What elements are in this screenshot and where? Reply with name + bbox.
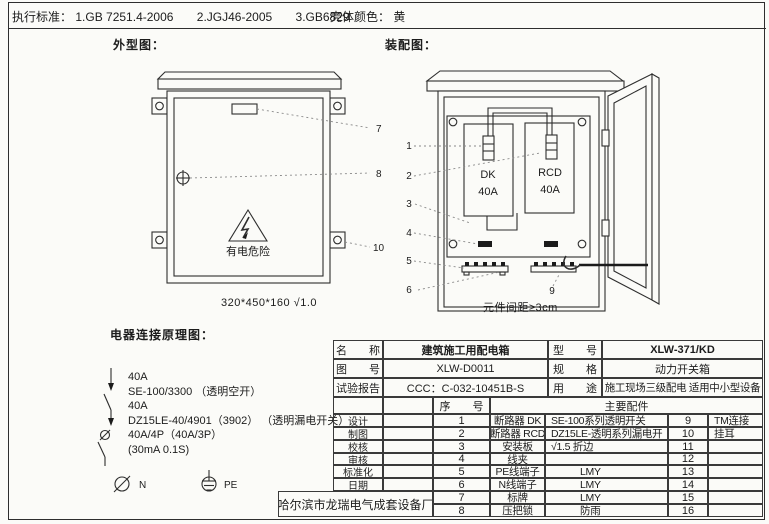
schematic-section-title: 电器连接原理图：: [110, 326, 214, 343]
sign-label: 标准化: [333, 465, 383, 478]
callout-10: 10: [373, 243, 385, 254]
sign-blank: [383, 427, 433, 440]
blank-cell: [383, 397, 433, 414]
schematic-line: 40A/4P（40A/3P）: [128, 428, 349, 443]
part-spec: DZ15LE-透明系列漏电开: [545, 427, 668, 440]
hinge: [602, 130, 609, 146]
shell-color: 壳体颜色： 黄: [330, 8, 405, 25]
schematic-spec-lines: 40A SE-100/3300 （透明空开） 40A DZ15LE-40/490…: [128, 370, 349, 458]
cabinet-roof: [158, 79, 341, 89]
callout-9: 9: [549, 286, 555, 297]
part-no2: 14: [668, 478, 708, 491]
factory-name: 哈尔滨市龙瑞电气成套设备厂: [278, 491, 433, 517]
part-spec2: [708, 478, 763, 491]
schematic-line: 40A: [128, 370, 349, 385]
part-no: 7: [433, 491, 490, 504]
header-divider: [8, 28, 766, 29]
neutral-earth-symbols: N PE: [108, 468, 248, 502]
part-spec: [545, 453, 668, 465]
schematic-line: DZ15LE-40/4901（3902） （透明漏电开关）: [128, 414, 349, 429]
callout-1: 1: [406, 141, 412, 152]
part-name: 断路器 RCD: [490, 427, 545, 440]
part-no: 4: [433, 453, 490, 465]
outline-size-caption: 320*450*160 √1.0: [221, 297, 317, 309]
part-no2: 10: [668, 427, 708, 440]
part-spec: LMY: [545, 491, 668, 504]
callout-4: 4: [406, 228, 412, 239]
shell-color-value: 黄: [393, 10, 405, 24]
sign-blank: [383, 453, 433, 465]
part-no: 2: [433, 427, 490, 440]
part-spec: SE-100系列透明开关: [545, 414, 668, 427]
sign-blank: [383, 478, 433, 491]
info-label: 型 号: [548, 340, 602, 359]
sign-label: 审核: [333, 453, 383, 465]
cable-clamp: [478, 241, 492, 247]
part-spec: LMY: [545, 465, 668, 478]
drawing-number: XLW-D0011: [383, 359, 548, 378]
part-name: 安装板: [490, 440, 545, 453]
breaker-rcd-rating: 40A: [540, 184, 560, 196]
part-spec2: [708, 491, 763, 504]
sign-label: 设计: [333, 414, 383, 427]
outline-drawing: 有电危险 7 8 10: [140, 60, 400, 315]
info-label: 名 称: [333, 340, 383, 359]
part-no: 1: [433, 414, 490, 427]
open-door: [608, 74, 659, 304]
part-spec2: [708, 504, 763, 517]
cabinet-roof: [427, 81, 624, 91]
info-label: 规 格: [548, 359, 602, 378]
part-spec: √1.5 折边: [545, 440, 668, 453]
callout-7: 7: [376, 124, 382, 135]
serial-header: 序 号: [433, 397, 490, 414]
part-no: 8: [433, 504, 490, 517]
breaker-rcd-name: RCD: [538, 167, 562, 179]
parts-header: 主要配件: [490, 397, 763, 414]
part-no2: 12: [668, 453, 708, 465]
info-label: 试验报告: [333, 378, 383, 397]
schematic-symbol-chain: [96, 364, 132, 468]
earth-symbol: PE: [202, 470, 238, 491]
sign-label: 日期: [333, 478, 383, 491]
breaker-dk-rating: 40A: [478, 186, 498, 198]
hinge: [602, 220, 609, 236]
callout-5: 5: [406, 256, 412, 267]
part-no2: 13: [668, 465, 708, 478]
part-no: 5: [433, 465, 490, 478]
info-label: 图 号: [333, 359, 383, 378]
shell-color-label: 壳体颜色：: [330, 10, 390, 24]
cabinet-roof-top: [427, 71, 623, 81]
standard-item: 2.JGJ46-2005: [197, 10, 272, 24]
sign-blank: [383, 465, 433, 478]
part-spec2: TM连接: [708, 414, 763, 427]
part-spec2: [708, 465, 763, 478]
earth-label: PE: [224, 480, 238, 491]
electric-hazard-text: 有电危险: [226, 244, 270, 258]
part-name: 断路器 DK: [490, 414, 545, 427]
part-name: 压把锁: [490, 504, 545, 517]
callout-2: 2: [406, 171, 412, 182]
test-report-number: CCC：C-032-10451B-S: [383, 378, 548, 397]
neutral-symbol: N: [114, 476, 146, 492]
standards-bar: 执行标准： 1.GB 7251.4-2006 2.JGJ46-2005 3.GB…: [8, 2, 766, 28]
assembly-drawing: DK 40A RCD 40A: [400, 60, 690, 315]
drawing-sheet: 执行标准： 1.GB 7251.4-2006 2.JGJ46-2005 3.GB…: [0, 0, 769, 524]
spec-value: 动力开关箱: [602, 359, 763, 378]
neutral-label: N: [139, 480, 146, 491]
model-number: XLW-371/KD: [602, 340, 763, 359]
standard-item: 1.GB 7251.4-2006: [75, 10, 173, 24]
part-name: PE线端子: [490, 465, 545, 478]
breaker-dk-name: DK: [480, 169, 496, 181]
part-spec2: [708, 440, 763, 453]
usage-value: 施工现场三级配电 适用中小型设备: [602, 378, 763, 397]
blank-cell: [333, 397, 383, 414]
part-no: 3: [433, 440, 490, 453]
cabinet-roof-top: [158, 72, 341, 79]
leader-line: [345, 242, 370, 247]
switch-blade: [104, 394, 111, 410]
part-spec: LMY: [545, 478, 668, 491]
part-name: N线端子: [490, 478, 545, 491]
part-spec2: [708, 453, 763, 465]
exec-standards-label: 执行标准：: [12, 10, 72, 24]
schematic-line: (30mA 0.1S): [128, 443, 349, 458]
callout-3: 3: [406, 199, 412, 210]
sign-blank: [383, 414, 433, 427]
assembly-section-title: 装配图：: [385, 36, 437, 53]
sign-label: 校核: [333, 440, 383, 453]
product-name: 建筑施工用配电箱: [383, 340, 548, 359]
cable-clamp: [544, 241, 558, 247]
part-no2: 16: [668, 504, 708, 517]
part-name: 线夹: [490, 453, 545, 465]
part-no2: 15: [668, 491, 708, 504]
callout-8: 8: [376, 169, 382, 180]
outline-section-title: 外型图：: [113, 36, 165, 53]
sign-label: 制图: [333, 427, 383, 440]
exec-standards: 执行标准： 1.GB 7251.4-2006 2.JGJ46-2005 3.GB…: [12, 8, 370, 25]
sign-blank: [383, 440, 433, 453]
cabinet-body: [438, 91, 605, 311]
part-no2: 9: [668, 414, 708, 427]
switch-blade: [98, 442, 105, 457]
part-no2: 11: [668, 440, 708, 453]
part-spec: 防雨: [545, 504, 668, 517]
assembly-spacing-caption: 元件间距≥3cm: [483, 299, 558, 315]
schematic-line: SE-100/3300 （透明空开）: [128, 385, 349, 400]
schematic-line: 40A: [128, 399, 349, 414]
part-name: 标牌: [490, 491, 545, 504]
info-label: 用 途: [548, 378, 602, 397]
callout-6: 6: [406, 285, 412, 296]
part-spec2: 挂耳: [708, 427, 763, 440]
part-no: 6: [433, 478, 490, 491]
